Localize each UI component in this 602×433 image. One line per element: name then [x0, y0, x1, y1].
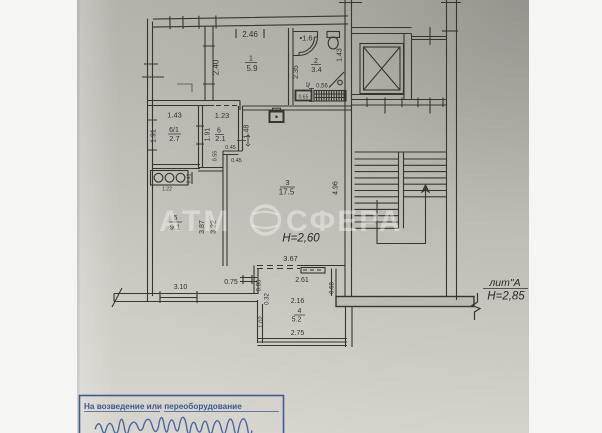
- svg-text:4.96: 4.96: [333, 181, 340, 195]
- svg-text:1.91: 1.91: [205, 128, 212, 142]
- svg-text:2: 2: [314, 58, 318, 65]
- svg-text:лит"А: лит"А: [488, 277, 520, 289]
- svg-text:1.43: 1.43: [167, 111, 182, 120]
- svg-text:4: 4: [298, 308, 302, 315]
- svg-text:H=2,85: H=2,85: [487, 291, 525, 303]
- svg-text:2.61: 2.61: [295, 277, 309, 284]
- svg-text:2.35: 2.35: [293, 65, 300, 79]
- svg-text:3.10: 3.10: [174, 284, 188, 291]
- svg-text:2.7: 2.7: [169, 134, 179, 143]
- svg-text:0.41: 0.41: [187, 173, 193, 183]
- svg-text:1.23: 1.23: [215, 111, 230, 120]
- svg-text:0.32: 0.32: [265, 293, 271, 305]
- svg-text:1.02: 1.02: [259, 316, 265, 328]
- svg-text:1.22: 1.22: [162, 187, 172, 193]
- svg-text:На возведение или переоборудов: На возведение или переоборудование: [84, 401, 242, 411]
- svg-text:•1.6: •1.6: [299, 34, 312, 43]
- svg-text:1.43: 1.43: [337, 48, 344, 62]
- svg-text:0.65: 0.65: [299, 95, 309, 101]
- svg-text:0.85: 0.85: [257, 279, 263, 291]
- svg-text:0.56: 0.56: [316, 84, 328, 90]
- svg-text:5.9: 5.9: [246, 64, 258, 73]
- svg-text:1.48: 1.48: [244, 125, 251, 139]
- svg-text:0.68: 0.68: [330, 282, 336, 294]
- svg-text:1: 1: [249, 56, 253, 63]
- svg-text:6/1: 6/1: [169, 127, 179, 134]
- svg-text:5.2: 5.2: [292, 317, 302, 324]
- svg-text:АТМ: АТМ: [159, 205, 232, 238]
- svg-text:3.4: 3.4: [311, 65, 321, 74]
- svg-text:2.1: 2.1: [215, 134, 225, 143]
- svg-text:0.45: 0.45: [225, 145, 236, 151]
- svg-text:1.91: 1.91: [151, 129, 158, 143]
- svg-text:2.46: 2.46: [242, 30, 258, 39]
- svg-text:2.75: 2.75: [291, 330, 305, 337]
- svg-text:0.75: 0.75: [224, 279, 238, 286]
- svg-text:42: 42: [306, 82, 312, 88]
- svg-text:17.5: 17.5: [279, 188, 295, 197]
- svg-text:2.16: 2.16: [291, 298, 305, 305]
- svg-text:3.67: 3.67: [283, 254, 298, 263]
- svg-text:0.55: 0.55: [213, 151, 219, 162]
- svg-text:3: 3: [285, 178, 289, 187]
- svg-text:2.40: 2.40: [212, 59, 221, 75]
- svg-text:СФЕРА: СФЕРА: [286, 205, 402, 238]
- svg-text:0.45: 0.45: [231, 158, 242, 164]
